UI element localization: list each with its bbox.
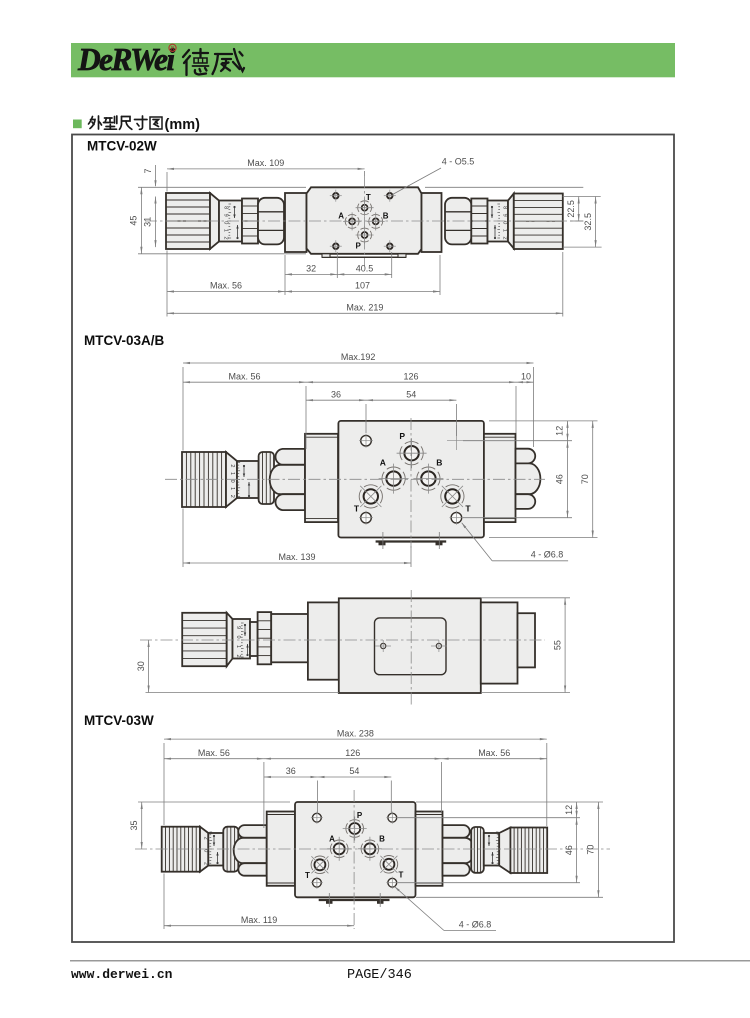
svg-text:9: 9 bbox=[502, 214, 508, 217]
svg-text:31: 31 bbox=[143, 217, 153, 227]
svg-text:32: 32 bbox=[306, 264, 316, 274]
svg-text:Max. 56: Max. 56 bbox=[478, 748, 510, 758]
svg-text:A: A bbox=[338, 211, 344, 220]
svg-text:1: 1 bbox=[229, 487, 235, 490]
svg-text:12: 12 bbox=[555, 426, 565, 436]
svg-text:70: 70 bbox=[580, 474, 590, 484]
svg-text:A: A bbox=[329, 835, 335, 844]
svg-text:2: 2 bbox=[203, 862, 209, 865]
svg-text:0: 0 bbox=[502, 221, 508, 224]
svg-text:12: 12 bbox=[564, 805, 574, 815]
svg-text:126: 126 bbox=[345, 748, 360, 758]
svg-text:Max. 119: Max. 119 bbox=[241, 915, 277, 925]
svg-text:36: 36 bbox=[286, 766, 296, 776]
svg-text:(mm): (mm) bbox=[165, 117, 201, 133]
svg-text:32.5: 32.5 bbox=[583, 213, 593, 231]
svg-text:1: 1 bbox=[235, 645, 241, 648]
svg-text:46: 46 bbox=[555, 474, 565, 484]
svg-text:B: B bbox=[379, 835, 385, 844]
svg-text:P: P bbox=[399, 431, 405, 441]
svg-text:T: T bbox=[354, 504, 360, 514]
svg-text:R: R bbox=[171, 46, 175, 52]
svg-text:2: 2 bbox=[223, 236, 229, 239]
svg-text:0: 0 bbox=[235, 635, 241, 638]
svg-text:36: 36 bbox=[331, 389, 341, 399]
svg-text:0: 0 bbox=[223, 221, 229, 224]
svg-text:T: T bbox=[305, 871, 310, 880]
svg-text:Max. 238: Max. 238 bbox=[337, 728, 374, 738]
svg-text:7: 7 bbox=[143, 168, 153, 173]
svg-text:1: 1 bbox=[502, 229, 508, 232]
svg-text:9: 9 bbox=[235, 626, 241, 629]
svg-text:4 - Ø6.8: 4 - Ø6.8 bbox=[459, 920, 492, 930]
svg-text:4 - O5.5: 4 - O5.5 bbox=[442, 157, 475, 167]
svg-text:Max. 109: Max. 109 bbox=[247, 158, 284, 168]
svg-text:2: 2 bbox=[229, 495, 235, 498]
svg-text:45: 45 bbox=[129, 216, 139, 226]
svg-text:2: 2 bbox=[229, 464, 235, 467]
svg-text:T: T bbox=[465, 504, 471, 514]
svg-text:1: 1 bbox=[223, 229, 229, 232]
svg-text:9: 9 bbox=[223, 214, 229, 217]
svg-text:MTCV-03W: MTCV-03W bbox=[84, 713, 154, 728]
svg-text:MTCV-03A/B: MTCV-03A/B bbox=[84, 333, 165, 348]
svg-text:107: 107 bbox=[355, 281, 370, 291]
svg-text:70: 70 bbox=[586, 845, 596, 855]
svg-text:P: P bbox=[356, 242, 362, 251]
svg-text:22.5: 22.5 bbox=[566, 200, 576, 218]
svg-text:46: 46 bbox=[564, 845, 574, 855]
svg-text:2: 2 bbox=[203, 837, 209, 840]
svg-text:40.5: 40.5 bbox=[356, 264, 374, 274]
svg-text:4 - Ø6.8: 4 - Ø6.8 bbox=[531, 550, 564, 560]
svg-text:0: 0 bbox=[229, 480, 235, 483]
svg-text:PAGE/346: PAGE/346 bbox=[347, 968, 412, 983]
svg-text:126: 126 bbox=[403, 371, 418, 381]
svg-text:10: 10 bbox=[521, 371, 531, 381]
svg-text:B: B bbox=[383, 211, 389, 220]
svg-text:Max. 139: Max. 139 bbox=[278, 552, 315, 562]
svg-text:T: T bbox=[366, 193, 371, 202]
svg-text:54: 54 bbox=[406, 389, 416, 399]
svg-text:35: 35 bbox=[129, 820, 139, 830]
svg-text:55: 55 bbox=[552, 640, 562, 650]
svg-text:Max. 56: Max. 56 bbox=[228, 371, 260, 381]
svg-text:2: 2 bbox=[235, 654, 241, 657]
svg-text:B: B bbox=[436, 458, 442, 468]
svg-text:8: 8 bbox=[223, 206, 229, 209]
svg-text:Max.192: Max.192 bbox=[341, 352, 376, 362]
svg-text:T: T bbox=[399, 871, 404, 880]
svg-text:1: 1 bbox=[229, 472, 235, 475]
svg-text:30: 30 bbox=[136, 661, 146, 671]
svg-text:0: 0 bbox=[203, 849, 209, 852]
svg-text:8: 8 bbox=[502, 206, 508, 209]
svg-text:P: P bbox=[357, 811, 363, 820]
svg-text:A: A bbox=[380, 458, 386, 468]
svg-text:Max. 56: Max. 56 bbox=[198, 748, 230, 758]
svg-text:www.derwei.cn: www.derwei.cn bbox=[71, 967, 173, 982]
svg-text:Max. 219: Max. 219 bbox=[346, 303, 383, 313]
svg-text:2: 2 bbox=[502, 236, 508, 239]
svg-text:MTCV-02W: MTCV-02W bbox=[87, 139, 157, 154]
svg-text:54: 54 bbox=[349, 766, 359, 776]
svg-text:Max. 56: Max. 56 bbox=[210, 281, 242, 291]
svg-text:DeRWei: DeRWei bbox=[77, 42, 175, 77]
